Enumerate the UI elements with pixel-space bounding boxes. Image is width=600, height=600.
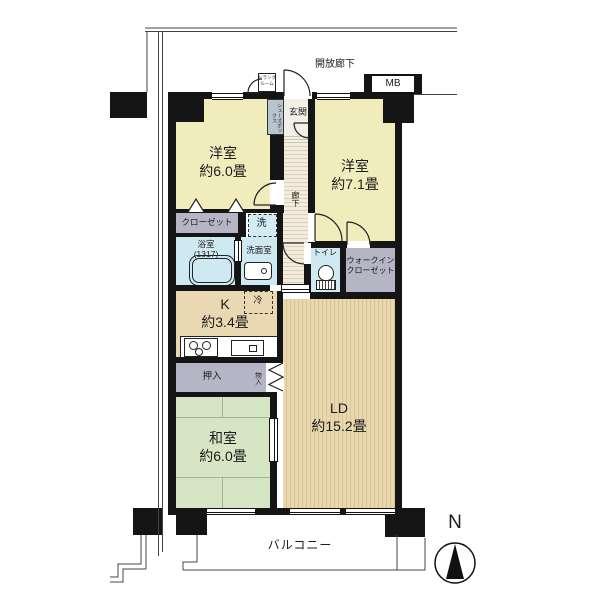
wall-top — [243, 92, 284, 99]
block-corridor-end — [110, 92, 147, 118]
wall-kitchen-bottom — [176, 357, 283, 363]
kitchen-sink-icon — [231, 340, 264, 356]
floor-plan: 開放廊下 MB トランクルーム 玄関 シューズボックス 廊下 洋室約6.0畳 洋… — [0, 0, 600, 600]
closet-label: クローゼット — [176, 217, 238, 228]
door-gap-room1 — [270, 180, 284, 205]
column-ne — [383, 94, 414, 123]
wall-corner-nw — [168, 92, 204, 122]
tatami-line — [176, 417, 270, 418]
door-gap-wic — [347, 242, 370, 248]
toilet-icon — [318, 265, 334, 281]
washer-label: 洗 — [248, 218, 275, 231]
western-room-1-label: 洋室約6.0畳 — [176, 145, 270, 180]
tatami-line — [222, 397, 223, 417]
trunk-room-label: トランクルーム — [258, 75, 276, 87]
compass-north-label: N — [443, 511, 467, 535]
storage-door-area — [266, 362, 284, 392]
wall-closet-bottom — [176, 233, 240, 237]
wall-washitsu-ld — [270, 392, 277, 418]
japanese-room-label: 和室約6.0畳 — [176, 430, 270, 465]
mb-label: MB — [372, 78, 414, 91]
balcony-label: バルコニー — [248, 538, 352, 553]
window-room2-north — [317, 93, 350, 100]
wall-kitchen-right — [277, 292, 283, 362]
fridge-label: 冷 — [244, 295, 272, 306]
block-sw — [176, 508, 207, 535]
sliding-door-washitsu-ld — [269, 418, 278, 462]
wall-bottom — [255, 508, 290, 515]
toilet-label: トイレ — [309, 248, 341, 258]
wall-hall-left — [277, 213, 283, 292]
window-ld-south-2 — [346, 508, 395, 515]
open-corridor-label: 開放廊下 — [300, 59, 370, 72]
wall-left — [168, 92, 176, 515]
western-room-2-label: 洋室約7.1畳 — [315, 158, 395, 193]
window-room1-north — [212, 93, 243, 100]
bathtub-icon — [189, 255, 235, 286]
mb-tab-right — [414, 74, 422, 94]
mb-tab-left — [364, 74, 372, 94]
wall-oshiire-bottom — [176, 392, 270, 397]
storage-small-label: 物入 — [253, 366, 260, 390]
hallway-label: 廊下 — [291, 180, 299, 218]
stove-icon — [184, 338, 218, 357]
living-dining-label: LD約15.2畳 — [283, 400, 395, 435]
sliding-door-hall-ld — [281, 284, 310, 293]
wall-top — [204, 92, 212, 99]
oshiire-label: 押入 — [176, 371, 248, 383]
wall-right — [395, 122, 402, 508]
bath-label: 浴室(1317) — [178, 239, 234, 259]
wall-room2-bottom — [370, 241, 397, 248]
washroom-label: 洗面室 — [241, 245, 277, 256]
wall-washitsu-ld — [270, 462, 277, 508]
tatami-line — [176, 477, 270, 478]
block-sw-outer — [133, 508, 163, 535]
wall-room1-right — [270, 135, 284, 180]
toilet-tank-icon — [316, 280, 336, 290]
wall-room1-right — [270, 205, 284, 213]
shoe-box-label: シューズボックス — [271, 101, 281, 134]
door-gap-room2 — [308, 213, 315, 242]
compass-icon — [435, 543, 475, 583]
entrance-label: 玄関 — [283, 107, 313, 118]
wall-closet-top — [176, 209, 270, 213]
window-ld-south-1 — [290, 508, 340, 515]
washbasin-icon — [244, 262, 272, 280]
tatami-line — [222, 477, 223, 508]
window-japanese-south — [207, 508, 255, 515]
walk-in-closet-label: ウォークインクローゼット — [344, 256, 397, 277]
wall-kitchen-top — [176, 285, 270, 291]
wall-ld-top — [310, 292, 402, 299]
